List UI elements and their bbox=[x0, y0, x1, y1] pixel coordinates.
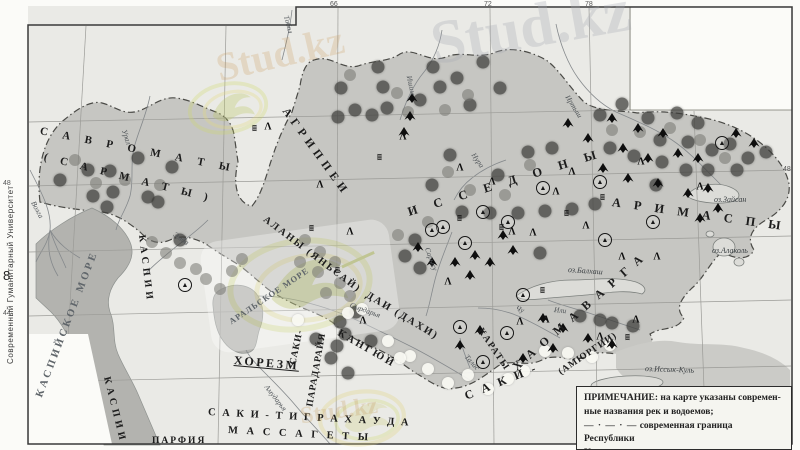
marker-dark-circle bbox=[656, 156, 669, 169]
marker-dark-circle bbox=[372, 61, 385, 74]
marker-gray-circle bbox=[392, 229, 404, 241]
marker-circled-triangle-icon: ▲ bbox=[646, 215, 660, 229]
marker-sha-icon: ш bbox=[498, 224, 507, 231]
marker-dark-circle bbox=[101, 201, 114, 214]
marker-gray-circle bbox=[226, 265, 238, 277]
marker-circled-triangle-icon: ▲ bbox=[500, 326, 514, 340]
marker-dark-circle bbox=[594, 314, 607, 327]
marker-gray-circle bbox=[90, 177, 102, 189]
marker-lambda-icon: Λ bbox=[529, 228, 536, 239]
marker-dark-circle bbox=[682, 136, 695, 149]
marker-dark-circle bbox=[494, 82, 507, 95]
scanned-map-page: ▲▲▲▲▲▲▲▲▲▲▲▲▲▲▲ΛΛΛΛΛΛΛΛΛΛΛΛΛΛΛΛΛΛΛΛΛшшшш… bbox=[0, 0, 800, 450]
marker-sha-icon: ш bbox=[599, 194, 608, 201]
marker-gray-circle bbox=[236, 253, 248, 265]
marker-gray-circle bbox=[694, 134, 706, 146]
marker-gray-circle bbox=[439, 104, 451, 116]
marker-circled-triangle-icon: ▲ bbox=[715, 136, 729, 150]
marker-lambda-icon: Λ bbox=[637, 157, 644, 168]
top-right-notch bbox=[631, 8, 792, 111]
lake-alakol-small bbox=[734, 258, 744, 266]
marker-lambda-icon: Λ bbox=[444, 277, 451, 288]
marker-sha-icon: ш bbox=[539, 287, 548, 294]
marker-dark-circle bbox=[325, 352, 338, 365]
marker-dark-circle bbox=[434, 81, 447, 94]
marker-circled-triangle-icon: ▲ bbox=[536, 181, 550, 195]
lake-sasykkol bbox=[706, 231, 714, 237]
marker-gray-circle bbox=[174, 257, 186, 269]
marker-lambda-icon: Λ bbox=[399, 132, 406, 143]
marker-dark-circle bbox=[366, 109, 379, 122]
marker-white-circle bbox=[462, 369, 474, 381]
grid-label: 72 bbox=[484, 1, 492, 8]
lake-label: оз.Зайсан bbox=[714, 196, 746, 204]
marker-dark-circle bbox=[399, 250, 412, 263]
marker-dark-circle bbox=[414, 262, 427, 275]
marker-dark-circle bbox=[760, 146, 773, 159]
marker-gray-circle bbox=[719, 152, 731, 164]
marker-dark-circle bbox=[594, 109, 607, 122]
marker-dark-circle bbox=[381, 102, 394, 115]
marker-circled-triangle-icon: ▲ bbox=[598, 233, 612, 247]
marker-dark-circle bbox=[702, 164, 715, 177]
marker-dark-circle bbox=[349, 104, 362, 117]
marker-dark-circle bbox=[539, 205, 552, 218]
marker-dark-circle bbox=[54, 174, 67, 187]
marker-dark-circle bbox=[107, 186, 120, 199]
marker-dark-circle bbox=[444, 149, 457, 162]
marker-dark-circle bbox=[377, 81, 390, 94]
marker-dark-circle bbox=[692, 117, 705, 130]
marker-circled-triangle-icon: ▲ bbox=[178, 278, 192, 292]
marker-dark-circle bbox=[451, 72, 464, 85]
marker-dark-circle bbox=[534, 247, 547, 260]
marker-dark-circle bbox=[742, 152, 755, 165]
marker-dark-circle bbox=[680, 164, 693, 177]
grid-label: 78 bbox=[585, 1, 593, 8]
marker-gray-circle bbox=[664, 122, 676, 134]
marker-white-circle bbox=[292, 314, 304, 326]
marker-gray-circle bbox=[320, 287, 332, 299]
legend-border-line: — · — · — современная граница Республики… bbox=[584, 420, 784, 450]
marker-gray-circle bbox=[214, 283, 226, 295]
marker-gray-circle bbox=[160, 247, 172, 259]
marker-sha-icon: ш bbox=[251, 125, 260, 132]
marker-dark-circle bbox=[427, 61, 440, 74]
marker-sha-icon: ш bbox=[563, 210, 572, 217]
marker-dark-circle bbox=[671, 107, 684, 120]
marker-lambda-icon: Λ bbox=[542, 315, 549, 326]
marker-gray-circle bbox=[391, 87, 403, 99]
marker-dark-circle bbox=[731, 164, 744, 177]
marker-gray-circle bbox=[462, 89, 474, 101]
marker-lambda-icon: Λ bbox=[632, 315, 639, 326]
marker-circled-triangle-icon: ▲ bbox=[453, 320, 467, 334]
lake-label: оз.Алаколь bbox=[712, 247, 748, 255]
marker-lambda-icon: Λ bbox=[582, 221, 589, 232]
marker-dark-circle bbox=[604, 142, 617, 155]
marker-circled-triangle-icon: ▲ bbox=[425, 223, 439, 237]
legend-title: ПРИМЕЧАНИЕ: bbox=[584, 393, 658, 403]
marker-lambda-icon: Λ bbox=[696, 182, 703, 193]
marker-dark-circle bbox=[426, 179, 439, 192]
legend-note-line: ПРИМЕЧАНИЕ: на карте указаны современ- н… bbox=[584, 392, 784, 420]
marker-dark-circle bbox=[477, 56, 490, 69]
river-label: Или bbox=[554, 306, 567, 315]
marker-white-circle bbox=[422, 363, 434, 375]
marker-dark-circle bbox=[332, 111, 345, 124]
marker-gray-circle bbox=[442, 166, 454, 178]
marker-lambda-icon: Λ bbox=[346, 227, 353, 238]
marker-sha-icon: ш bbox=[456, 215, 465, 222]
marker-dark-circle bbox=[606, 317, 619, 330]
marker-gray-circle bbox=[344, 69, 356, 81]
marker-gray-circle bbox=[190, 263, 202, 275]
marker-lambda-icon: Λ bbox=[316, 180, 323, 191]
marker-lambda-icon: Λ bbox=[264, 122, 271, 133]
lake-label: оз.Иссык-Куль bbox=[645, 365, 694, 375]
marker-dark-circle bbox=[335, 82, 348, 95]
marker-lambda-icon: Λ bbox=[653, 252, 660, 263]
grid-label: 48 bbox=[783, 166, 791, 173]
marker-white-circle bbox=[382, 335, 394, 347]
marker-sha-icon: ш bbox=[308, 225, 317, 232]
marker-circled-triangle-icon: ▲ bbox=[593, 175, 607, 189]
marker-circled-triangle-icon: ▲ bbox=[458, 236, 472, 250]
map-base-art bbox=[0, 0, 800, 450]
marker-white-circle bbox=[442, 377, 454, 389]
marker-lambda-icon: Λ bbox=[456, 163, 463, 174]
marker-circled-triangle-icon: ▲ bbox=[476, 205, 490, 219]
grid-label: 66 bbox=[330, 1, 338, 8]
marker-dark-circle bbox=[546, 142, 559, 155]
marker-sha-icon: ш bbox=[624, 334, 633, 341]
page-number: 8 bbox=[3, 268, 10, 283]
marker-gray-circle bbox=[606, 124, 618, 136]
marker-dark-circle bbox=[616, 98, 629, 111]
marker-lambda-icon: Λ bbox=[516, 317, 523, 328]
marker-lambda-icon: Λ bbox=[552, 187, 559, 198]
marker-dark-circle bbox=[152, 196, 165, 209]
marker-dark-circle bbox=[522, 146, 535, 159]
marker-dark-circle bbox=[342, 367, 355, 380]
tribe-label: ПАРФИЯ bbox=[152, 437, 206, 447]
marker-lambda-icon: Λ bbox=[508, 227, 515, 238]
marker-circled-triangle-icon: ▲ bbox=[516, 288, 530, 302]
marker-gray-circle bbox=[200, 273, 212, 285]
marker-dark-circle bbox=[87, 190, 100, 203]
marker-dark-circle bbox=[642, 112, 655, 125]
marker-sha-icon: ш bbox=[376, 154, 385, 161]
dash-dot-border-sample: — · — · — bbox=[584, 421, 637, 431]
marker-lambda-icon: Λ bbox=[359, 316, 366, 327]
map-legend: ПРИМЕЧАНИЕ: на карте указаны современ- н… bbox=[576, 386, 792, 450]
